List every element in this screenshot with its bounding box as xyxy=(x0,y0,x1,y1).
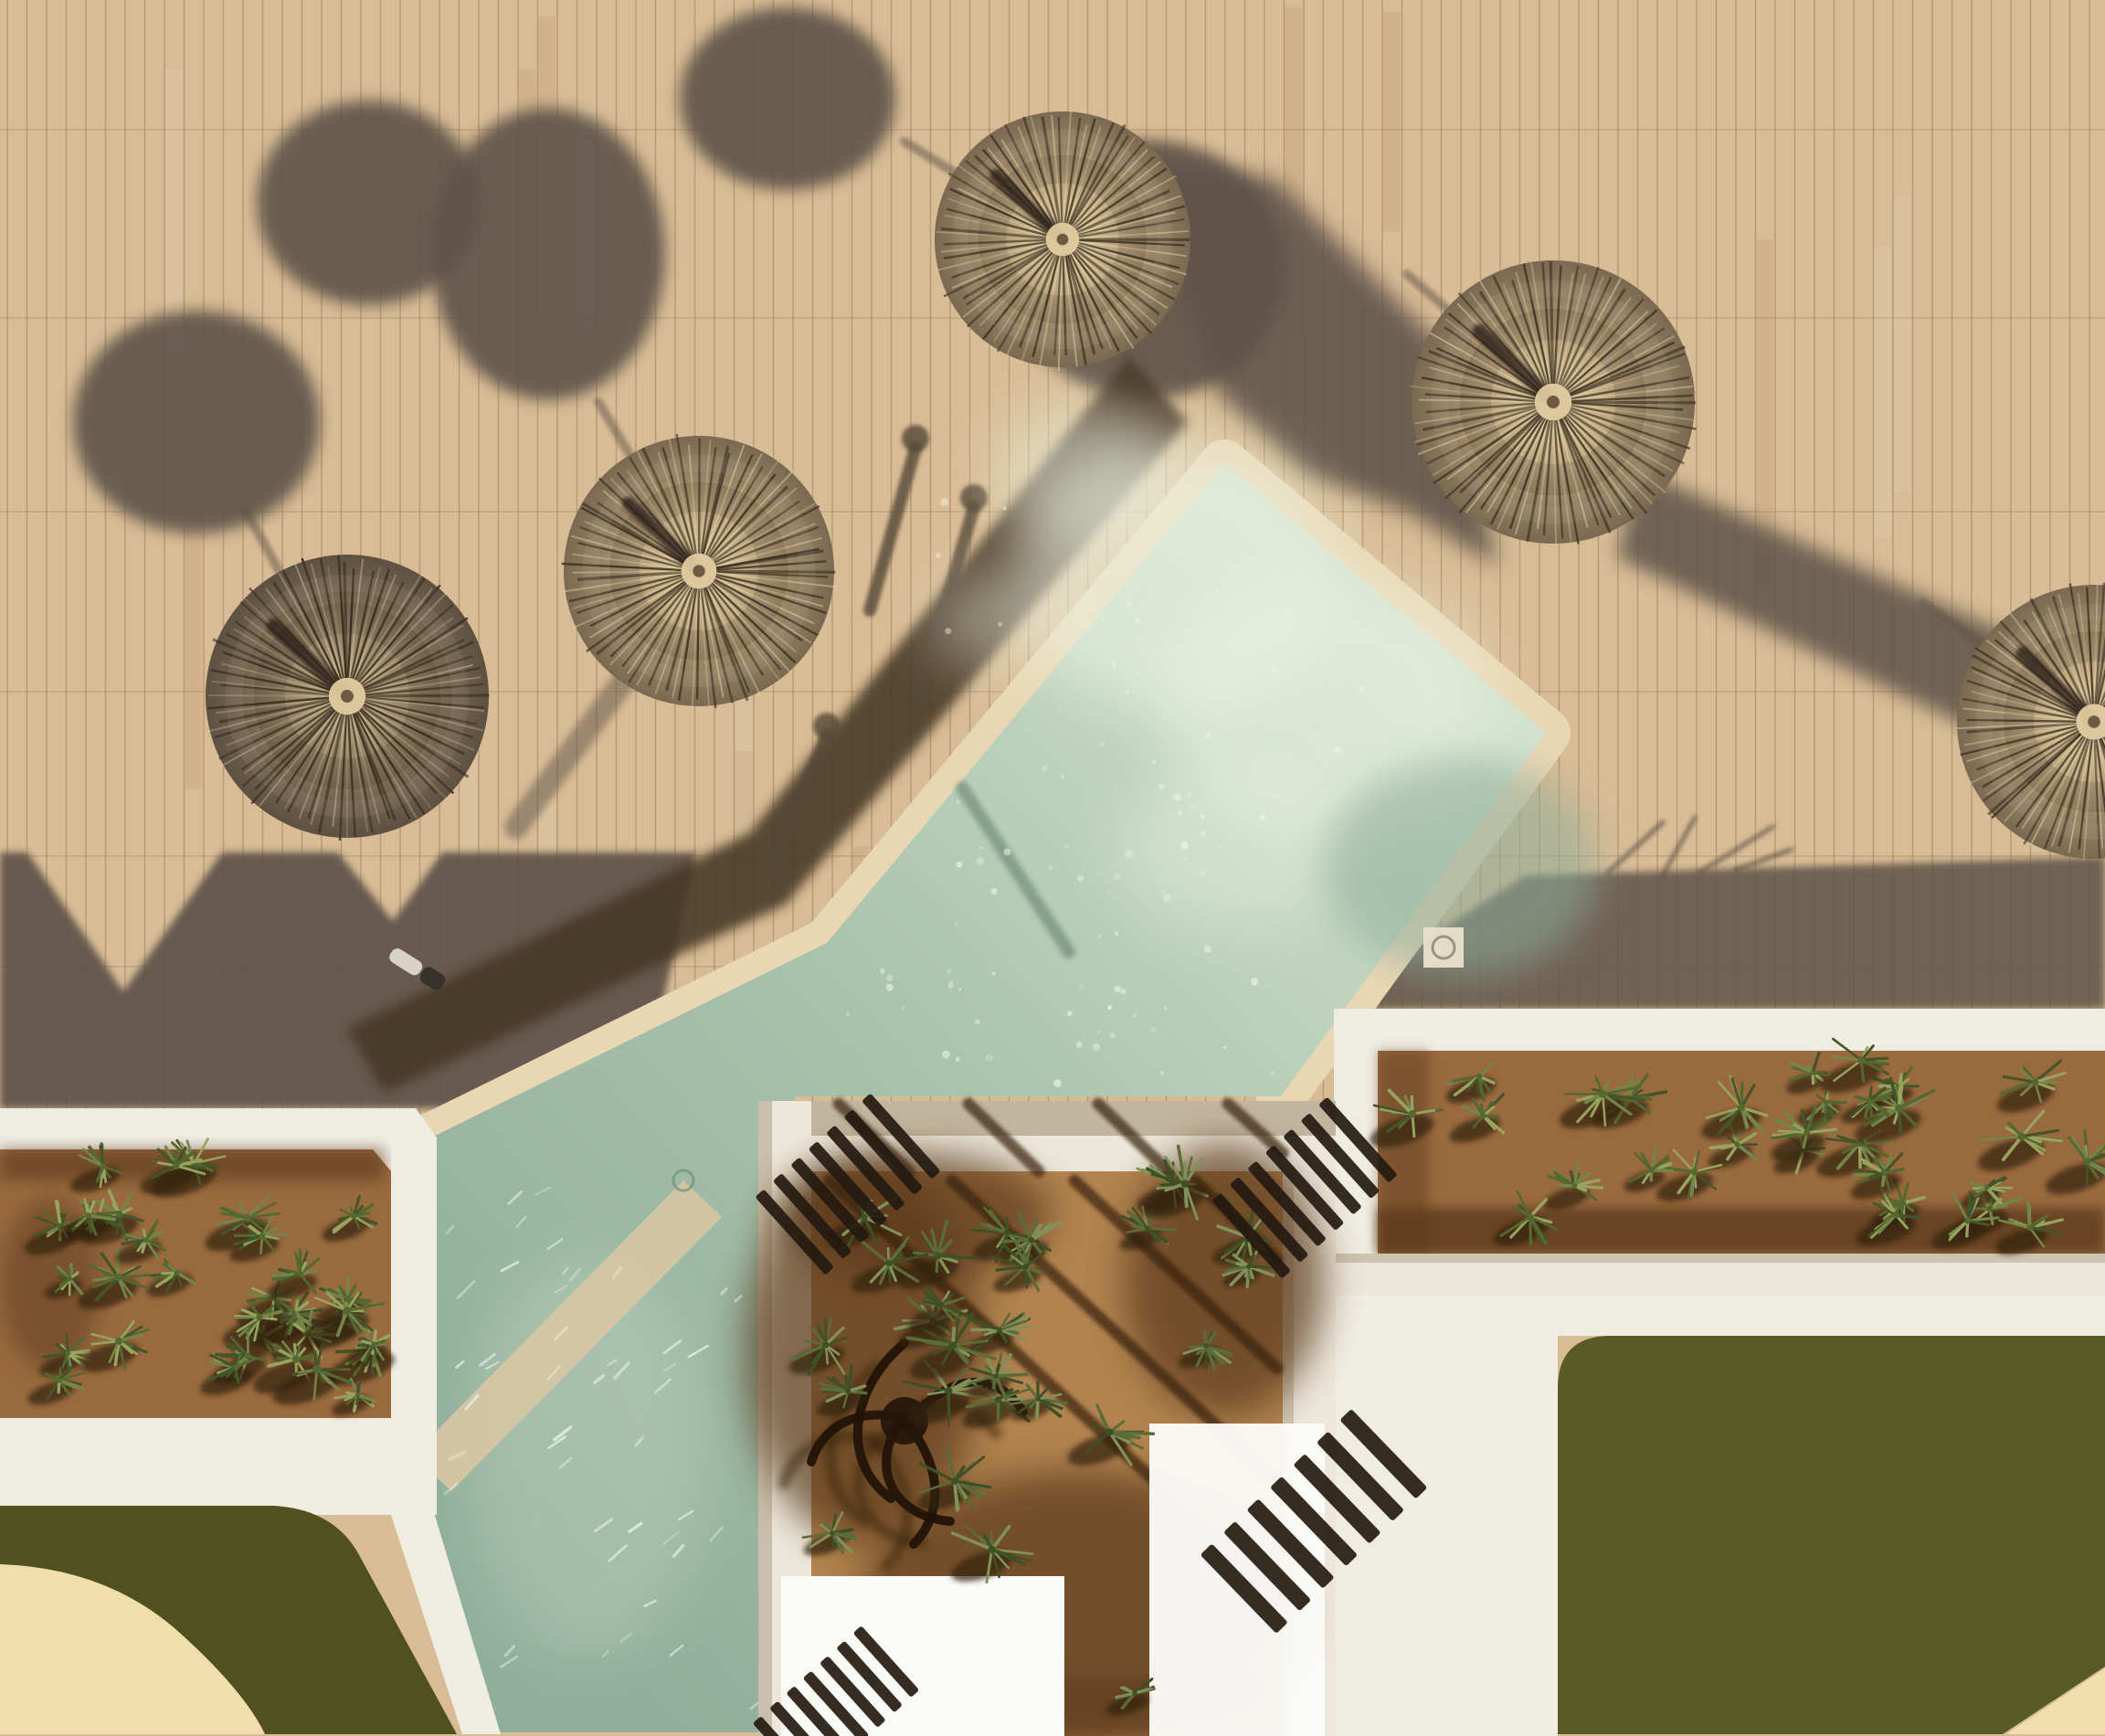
sparkle xyxy=(1126,690,1129,693)
plant-core xyxy=(1599,1090,1607,1098)
sparkle xyxy=(1205,733,1211,738)
sparkle xyxy=(1099,741,1105,746)
plant-core xyxy=(1480,1113,1486,1119)
sparkle xyxy=(956,799,960,804)
foam-patch xyxy=(932,571,1060,672)
plant-core xyxy=(1964,1217,1971,1223)
sparkle xyxy=(1053,1079,1062,1087)
sparkle xyxy=(1187,793,1191,798)
sparkle xyxy=(1204,946,1211,953)
sparkle xyxy=(1333,746,1341,754)
sparkle xyxy=(1164,1007,1167,1010)
plant-core xyxy=(1145,1226,1150,1232)
sparkle xyxy=(1214,588,1221,595)
plant-core xyxy=(86,1212,91,1218)
plant-core xyxy=(173,1162,179,1169)
plant-core xyxy=(245,1352,251,1359)
plant-core xyxy=(830,1530,835,1536)
sparkle xyxy=(1217,845,1221,849)
sparkle xyxy=(886,974,894,981)
sparkle xyxy=(1190,806,1195,810)
plant-core xyxy=(1881,1170,1888,1176)
plant-core xyxy=(949,1341,957,1350)
sparkle xyxy=(1042,766,1048,772)
plant-core xyxy=(938,1302,945,1308)
sparkle xyxy=(846,1012,850,1016)
sparkle xyxy=(1111,661,1117,667)
plant-core xyxy=(1691,1169,1698,1176)
foam-patch xyxy=(991,400,1165,546)
plant-core xyxy=(174,1270,179,1276)
sparkle xyxy=(990,888,997,894)
sparkle xyxy=(1251,978,1259,986)
plant-core xyxy=(845,1389,851,1394)
leaf xyxy=(67,1335,69,1353)
plant-core xyxy=(292,1355,301,1363)
sparkle xyxy=(1270,1071,1275,1075)
leaf xyxy=(1109,1433,1153,1434)
leaf xyxy=(1899,1074,1901,1108)
plant-core xyxy=(1895,1104,1903,1112)
plant-core xyxy=(1649,1168,1655,1173)
planter-wall-shadow xyxy=(1334,1254,2105,1263)
sparkle xyxy=(998,622,1002,627)
sparkle xyxy=(1137,672,1140,674)
sparkle xyxy=(1076,1042,1083,1048)
sparkle xyxy=(1201,831,1206,836)
umbrella-pole xyxy=(341,690,354,703)
plant-core xyxy=(1571,1183,1577,1189)
plant-core xyxy=(259,1233,266,1239)
plant-core xyxy=(934,1252,941,1259)
plant-core xyxy=(1527,1213,1533,1220)
sparkle xyxy=(1097,935,1101,938)
sparkle xyxy=(1271,667,1276,672)
sparkle xyxy=(1178,811,1181,815)
plant-core xyxy=(951,1477,957,1484)
sparkle xyxy=(1125,850,1133,858)
plant-core xyxy=(343,1307,351,1315)
sparkle xyxy=(945,628,951,634)
walk-path-left xyxy=(0,1418,433,1506)
scene-root xyxy=(0,0,2105,1736)
sparkle xyxy=(1200,870,1205,875)
plant-core xyxy=(1867,1098,1873,1104)
sparkle xyxy=(1110,1032,1116,1039)
plant-core xyxy=(371,1342,376,1347)
sparkle xyxy=(979,846,982,849)
sparkle xyxy=(956,1057,960,1062)
sparkle xyxy=(1259,814,1266,821)
sparkle xyxy=(1180,842,1188,849)
sparkle xyxy=(1162,889,1166,893)
sparkle xyxy=(1152,760,1156,764)
lawn-right xyxy=(1558,1336,2105,1734)
plant-core xyxy=(243,1214,250,1222)
plant-core xyxy=(1181,1180,1190,1188)
sparkle xyxy=(1282,606,1290,614)
scene-canvas xyxy=(0,0,2105,1736)
plant-core xyxy=(1892,1212,1899,1219)
sparkle xyxy=(1114,986,1120,992)
sparkle xyxy=(1065,844,1070,849)
plant-core xyxy=(1984,1185,1989,1190)
umbrella-pole xyxy=(1057,234,1069,246)
planter-shade-right xyxy=(1378,1051,1429,1254)
sparkle xyxy=(886,984,894,991)
sparkle xyxy=(1272,793,1277,799)
sparkle xyxy=(1115,931,1119,936)
plant-core xyxy=(57,1377,62,1382)
plant-core xyxy=(1738,1104,1745,1111)
plank-tint xyxy=(165,69,183,353)
plant-core xyxy=(1987,1206,1994,1212)
foam-patch xyxy=(1115,767,1352,932)
leaf xyxy=(1190,1346,1207,1348)
plant-core xyxy=(1132,1690,1137,1696)
planter-border-right-top xyxy=(1334,1009,2105,1051)
sparkle xyxy=(1201,814,1206,820)
plant-core xyxy=(1246,1265,1251,1269)
plant-core xyxy=(1804,1129,1810,1136)
plant-core xyxy=(1036,1396,1041,1401)
umbrella-pole xyxy=(693,565,704,577)
sparkle xyxy=(1223,1046,1226,1049)
plant-core xyxy=(1857,1056,1865,1064)
plant-core xyxy=(256,1314,262,1320)
plank-tint xyxy=(185,509,202,789)
sparkle xyxy=(1048,865,1052,870)
plant-core xyxy=(1735,1142,1740,1148)
plank-tint xyxy=(1894,197,1911,492)
sparkle xyxy=(1114,873,1120,880)
sparkle xyxy=(1359,685,1366,693)
umbrella-shadow xyxy=(431,108,665,400)
white-platform xyxy=(781,1576,1064,1736)
sparkle xyxy=(1133,1013,1137,1017)
plant-core xyxy=(114,1274,122,1281)
plant-core xyxy=(993,1373,999,1379)
leaf xyxy=(1037,1399,1038,1418)
sparkle xyxy=(957,862,963,868)
plant-core xyxy=(997,1327,1002,1332)
leaf xyxy=(1825,1102,1826,1123)
aerial-resort-photo xyxy=(0,0,2105,1736)
plant-core xyxy=(66,1350,71,1356)
sparkle xyxy=(1097,1030,1100,1032)
sparkle xyxy=(940,498,948,506)
leaf xyxy=(1003,1240,1031,1242)
sparkle xyxy=(1004,848,1011,855)
sparkle xyxy=(1324,790,1327,793)
sparkle xyxy=(991,971,995,975)
umbrella-pole xyxy=(1547,396,1560,408)
sparkle xyxy=(902,1006,905,1010)
leaf xyxy=(2028,1202,2030,1227)
plant-core xyxy=(861,1213,868,1221)
plant-core xyxy=(2018,1132,2026,1140)
plant-core xyxy=(2026,1224,2033,1231)
sparkle xyxy=(947,969,951,973)
plant-core xyxy=(232,1364,238,1371)
plant-core xyxy=(1409,1110,1416,1117)
walk-path-right xyxy=(1334,1296,2105,1336)
plant-core xyxy=(1824,1099,1829,1105)
plank-tint xyxy=(1383,12,1401,232)
skimmer-box xyxy=(1423,927,1464,968)
plant-core xyxy=(351,1213,356,1219)
plant-core xyxy=(1022,1264,1028,1269)
plant-core xyxy=(1476,1074,1483,1080)
leaf xyxy=(1651,1170,1672,1171)
plant-core xyxy=(1204,1343,1210,1349)
sparkle xyxy=(1077,875,1083,881)
plank-tint xyxy=(1874,248,1891,536)
sparkle xyxy=(1067,1011,1073,1016)
plant-core xyxy=(2083,1158,2090,1165)
plant-core xyxy=(100,1163,107,1170)
umbrella-shadow xyxy=(680,7,895,190)
sparkle xyxy=(1160,1071,1164,1074)
plant-core xyxy=(1029,1237,1035,1244)
sparkle xyxy=(1080,985,1084,989)
sparkle xyxy=(1120,989,1126,994)
plant-core xyxy=(297,1271,303,1277)
sparkle xyxy=(942,1051,950,1059)
plant-core xyxy=(822,1341,829,1348)
plant-core xyxy=(344,1297,351,1303)
umbrella-pole xyxy=(2088,715,2100,728)
plant-core xyxy=(312,1366,321,1374)
sparkle xyxy=(1173,793,1181,801)
leaf xyxy=(1249,1266,1271,1267)
leaf xyxy=(996,1374,1027,1376)
sparkle xyxy=(976,857,984,865)
sparkle xyxy=(949,980,954,985)
sparkle xyxy=(1062,776,1064,778)
plant-core xyxy=(115,1338,122,1345)
sparkle xyxy=(1127,601,1133,608)
sparkle xyxy=(880,969,885,974)
sparkle xyxy=(936,553,942,559)
plant-core xyxy=(995,1396,1001,1403)
walk-path-center xyxy=(1336,1296,1558,1736)
plant-core xyxy=(2032,1078,2039,1085)
sparkle xyxy=(1150,1026,1157,1032)
sparkle xyxy=(1135,619,1140,624)
sparkle xyxy=(1115,787,1117,789)
umbrella-shadow xyxy=(73,311,320,534)
sparkle xyxy=(1003,507,1007,511)
plant-core xyxy=(143,1237,149,1243)
sparkle xyxy=(958,988,961,990)
leaf xyxy=(832,1533,855,1535)
sparkle xyxy=(1158,784,1165,790)
sparkle xyxy=(1058,707,1062,711)
plant-core xyxy=(355,1392,360,1397)
sparkle xyxy=(1163,894,1171,902)
plant-core xyxy=(68,1276,72,1281)
leaf xyxy=(1530,1217,1531,1244)
plant-core xyxy=(1810,1070,1814,1074)
sparkle xyxy=(986,1054,993,1062)
sparkle xyxy=(1107,1006,1111,1010)
sparkle xyxy=(955,922,958,926)
leaf xyxy=(217,1354,249,1356)
plant-core xyxy=(885,1260,892,1266)
plant-core xyxy=(1900,1201,1906,1206)
sparkle xyxy=(1108,889,1112,893)
sparkle xyxy=(975,1019,980,1024)
sparkle xyxy=(1185,858,1188,861)
sparkle xyxy=(1093,1043,1100,1051)
plant-core xyxy=(945,1387,952,1394)
plant-core xyxy=(1105,1428,1113,1435)
plant-core xyxy=(989,1546,996,1553)
leaf xyxy=(1861,1058,1887,1060)
